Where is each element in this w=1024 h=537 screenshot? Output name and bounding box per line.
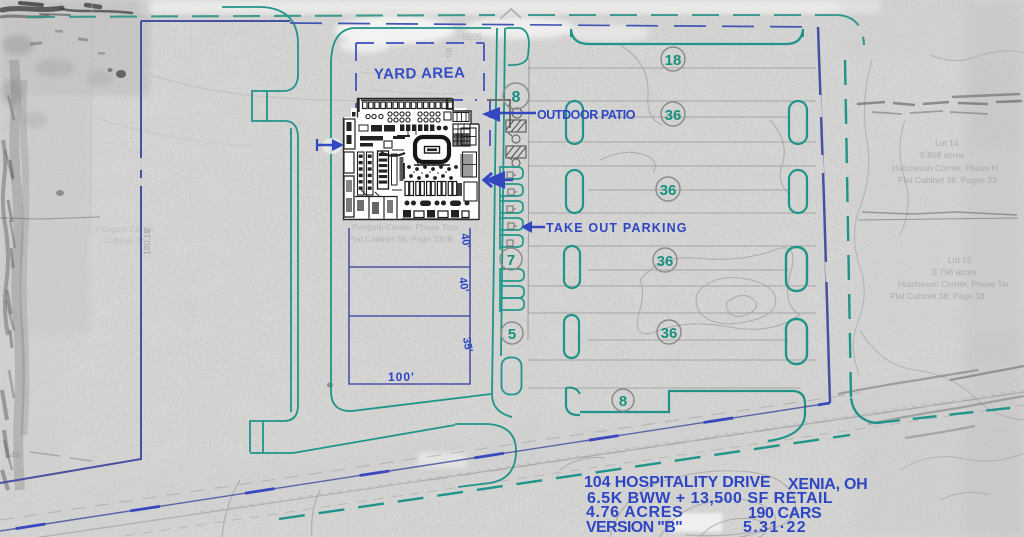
svg-text:104 HOSPITALITY DRIVE: 104 HOSPITALITY DRIVE [584, 474, 771, 491]
svg-text:180.19': 180.19' [142, 227, 152, 255]
svg-text:Lot 14: Lot 14 [935, 138, 959, 148]
svg-text:Plat Cabinet 38, Pages 33: Plat Cabinet 38, Pages 33 [898, 175, 997, 185]
svg-text:5: 5 [508, 326, 516, 343]
svg-text:100': 100' [388, 370, 415, 384]
svg-text:36: 36 [661, 325, 678, 342]
svg-text:VERSION "B": VERSION "B" [586, 519, 683, 536]
svg-text:8: 8 [512, 89, 521, 106]
svg-text:0.808 acres: 0.808 acres [920, 150, 964, 160]
svg-text:5505: 5505 [462, 32, 482, 42]
svg-text:36: 36 [660, 182, 677, 199]
svg-text:Lot 15: Lot 15 [948, 255, 972, 265]
svg-text:Plat Cabinet 38, Page 330B: Plat Cabinet 38, Page 330B [348, 234, 453, 244]
svg-text:YARD AREA: YARD AREA [374, 64, 467, 83]
svg-text:TAKE OUT PARKING: TAKE OUT PARKING [546, 221, 687, 235]
svg-text:5.31·22: 5.31·22 [743, 519, 806, 536]
svg-text:SB: SB [445, 47, 454, 58]
svg-text:36: 36 [665, 107, 682, 124]
svg-text:Penguin Center, Phase Two: Penguin Center, Phase Two [352, 222, 457, 232]
svg-text:7: 7 [507, 252, 515, 269]
svg-text:49: 49 [10, 450, 20, 460]
svg-text:OUTDOOR PATIO: OUTDOOR PATIO [537, 108, 636, 122]
svg-text:Cabinet 38: Cabinet 38 [104, 235, 145, 245]
svg-text:18: 18 [665, 52, 682, 69]
svg-text:8: 8 [619, 393, 627, 410]
svg-text:0.796 acres: 0.796 acres [932, 267, 976, 277]
svg-text:36: 36 [657, 253, 674, 270]
svg-text:Hutcheson Corner, Phase H: Hutcheson Corner, Phase H [892, 163, 998, 173]
svg-text:Hutcheson Corner, Phase Tw: Hutcheson Corner, Phase Tw [898, 279, 1009, 289]
svg-text:Plat Cabinet 38, Page 33: Plat Cabinet 38, Page 33 [890, 291, 985, 301]
